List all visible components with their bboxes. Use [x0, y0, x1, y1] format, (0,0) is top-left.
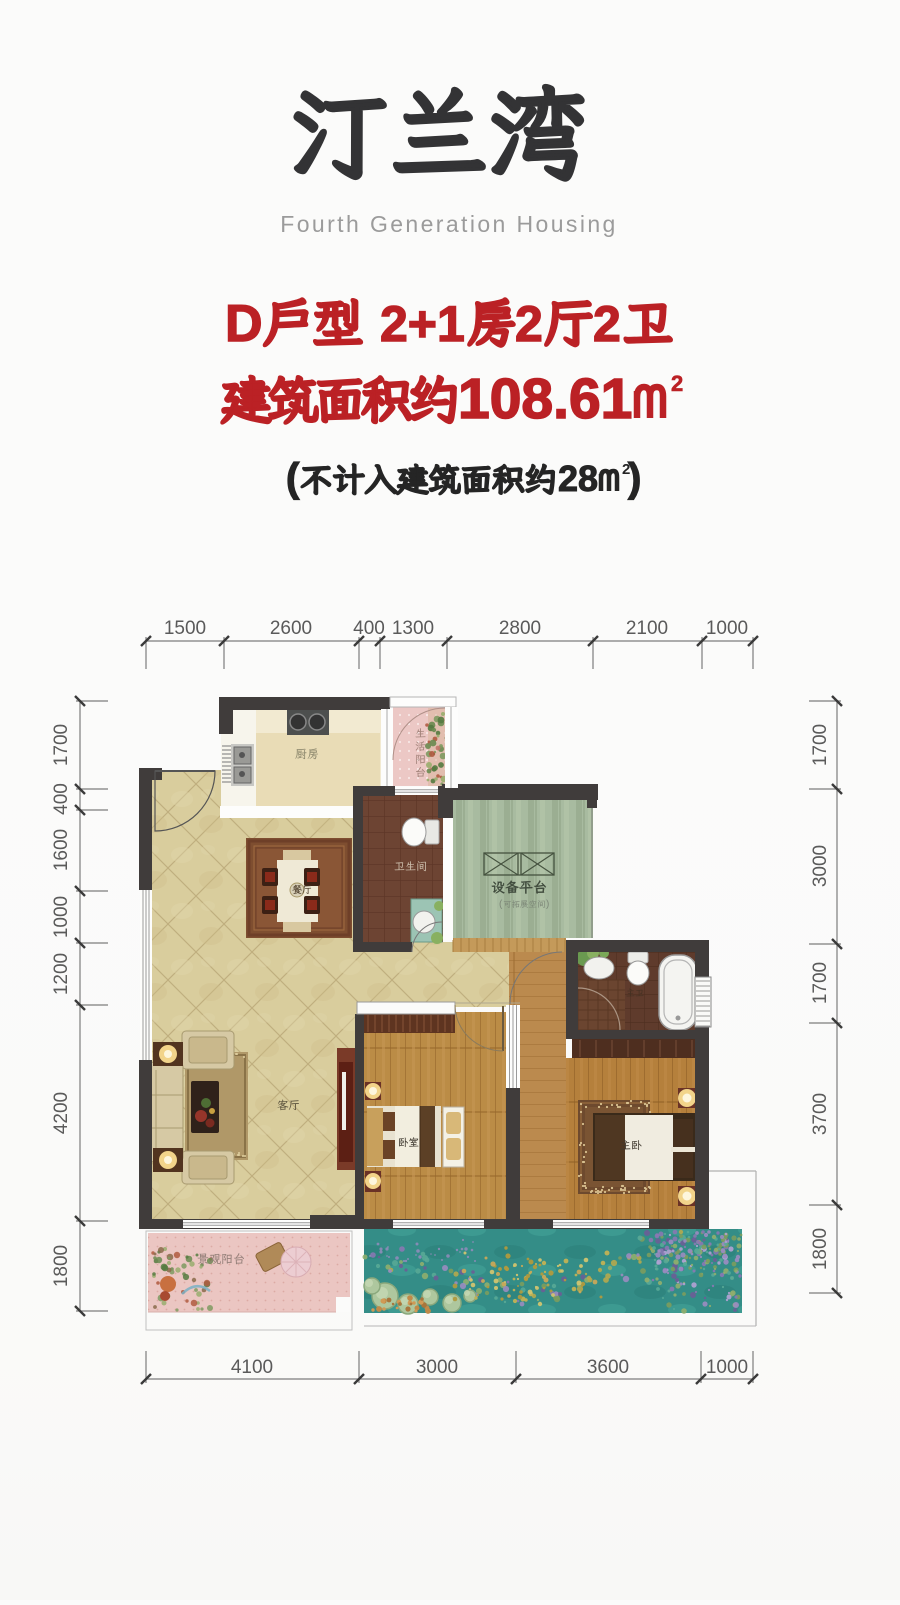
svg-text:28: 28 — [558, 458, 598, 499]
svg-text:): ) — [628, 456, 641, 500]
svg-text:): ) — [546, 899, 549, 910]
svg-text:2600: 2600 — [270, 618, 312, 639]
svg-text:4200: 4200 — [51, 1092, 72, 1134]
svg-text:3000: 3000 — [416, 1357, 458, 1378]
svg-text:1800: 1800 — [51, 1245, 72, 1287]
svg-text:3700: 3700 — [810, 1093, 831, 1135]
svg-text:1700: 1700 — [810, 724, 831, 766]
svg-text:(: ( — [286, 456, 300, 500]
svg-text:108.61: 108.61 — [458, 367, 632, 431]
svg-text:2+1: 2+1 — [380, 296, 465, 352]
svg-text:1700: 1700 — [810, 962, 831, 1004]
svg-text:D: D — [225, 295, 263, 353]
svg-text:1000: 1000 — [51, 896, 72, 938]
svg-text:2: 2 — [593, 296, 621, 352]
svg-text:1500: 1500 — [164, 618, 206, 639]
svg-text:1000: 1000 — [706, 618, 748, 639]
svg-text:3600: 3600 — [587, 1357, 629, 1378]
svg-text:2: 2 — [671, 371, 683, 396]
svg-text:1600: 1600 — [51, 829, 72, 871]
svg-text:400: 400 — [51, 783, 72, 815]
svg-text:1200: 1200 — [51, 953, 72, 995]
svg-text:2100: 2100 — [626, 618, 668, 639]
svg-text:1000: 1000 — [706, 1357, 748, 1378]
svg-text:1700: 1700 — [51, 724, 72, 766]
svg-text:3000: 3000 — [810, 845, 831, 887]
svg-text:2: 2 — [515, 296, 543, 352]
svg-text:2800: 2800 — [499, 618, 541, 639]
svg-text:400: 400 — [353, 618, 385, 639]
svg-text:4100: 4100 — [231, 1357, 273, 1378]
svg-text:1800: 1800 — [810, 1228, 831, 1270]
svg-text:1300: 1300 — [392, 618, 434, 639]
svg-text:Fourth Generation Housing: Fourth Generation Housing — [280, 211, 617, 237]
